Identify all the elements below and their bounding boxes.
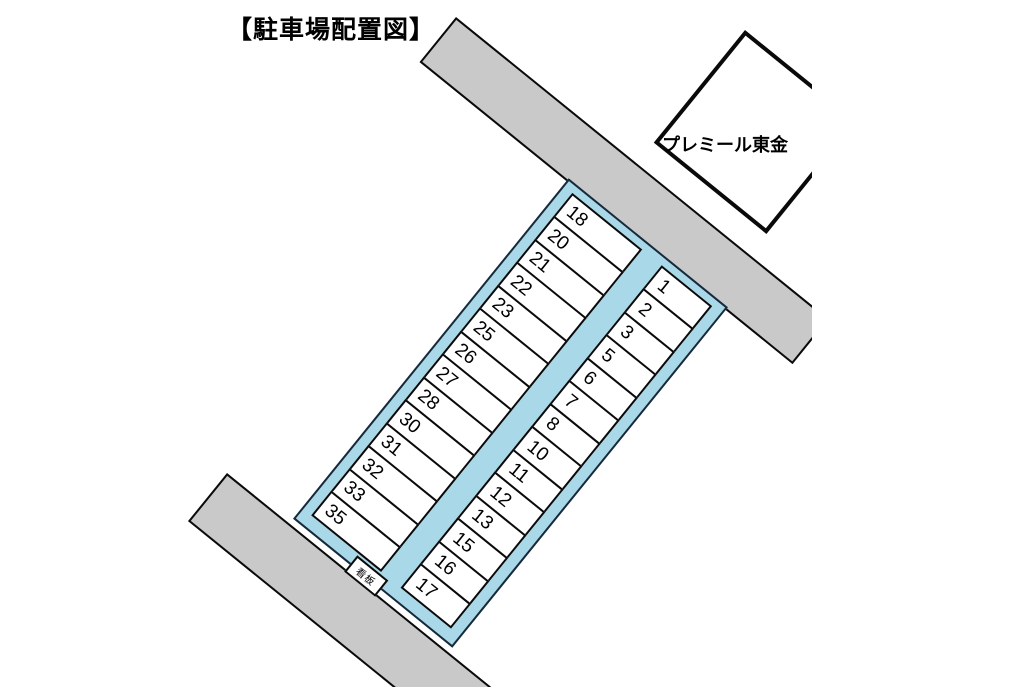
space-number: 3 — [616, 322, 636, 343]
space-number: 6 — [579, 368, 599, 389]
space-number: 5 — [598, 345, 618, 366]
parking-layout-diagram: 【駐車場配置図】 プレミール東金 18 20 21 22 23 25 26 27… — [0, 0, 1031, 687]
space-number: 7 — [561, 391, 581, 412]
space-number: 35 — [321, 501, 349, 529]
space-number: 1 — [653, 277, 673, 298]
space-number: 17 — [412, 574, 440, 602]
building-label: プレミール東金 — [662, 131, 788, 157]
space-number: 8 — [542, 414, 562, 435]
space-number: 2 — [635, 299, 655, 320]
